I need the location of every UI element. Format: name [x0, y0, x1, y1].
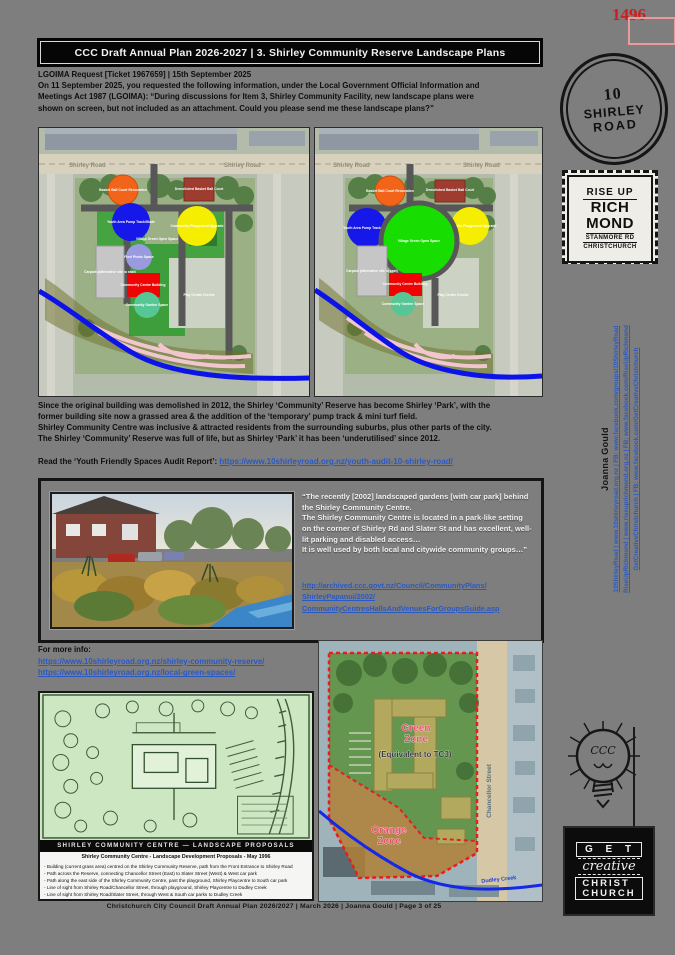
village-green-label: Village Green Open Space	[398, 239, 440, 243]
land-zone-map: Green Zone (Equivalent to TC3) Orange Zo…	[318, 640, 543, 902]
archive-link-line[interactable]: ShirleyPapanui/2002/	[302, 591, 532, 602]
parked-car	[138, 552, 162, 561]
demolished-court-label: Demolished Basket Ball Court	[426, 188, 475, 192]
archive-link-line[interactable]: CommunityCentresHallsAndVenuesForGroupsG…	[302, 603, 532, 614]
basketball-renovation-label: Basket Ball Court Renovation	[99, 188, 147, 192]
rise-up-richmond-stamp: RISE UP RICH MOND STANMORE RD CHRISTCHUR…	[562, 170, 658, 264]
sidebar-divider-line	[633, 727, 635, 827]
audit-report-link[interactable]: https://www.10shirleyroad.org.nz/youth-a…	[219, 457, 453, 466]
stamp-line: CHURCH	[582, 889, 635, 899]
archived-quote-source: http://archived.ccc.govt.nz/Council/Comm…	[302, 580, 532, 614]
plan-drawing	[40, 693, 312, 840]
body-line: former building site now a grassed area …	[38, 411, 546, 422]
stamp-line: 10	[603, 85, 623, 105]
more-info-link-1[interactable]: https://www.10shirleyroad.org.nz/shirley…	[38, 656, 338, 668]
basketball-renovation-label: Basket Ball Court Renovation	[366, 189, 414, 193]
audit-label: Read the ‘Youth Friendly Spaces Audit Re…	[38, 457, 219, 466]
shirley-road-stamp: 10 SHIRLEY ROAD	[555, 49, 672, 170]
poster-page: CCC Draft Annual Plan 2026-2027 | 3. Shi…	[0, 0, 675, 955]
stamp-line: G E T	[576, 842, 642, 857]
stamp-line: STANMORE RD	[586, 233, 635, 241]
more-info-link-2[interactable]: https://www.10shirleyroad.org.nz/local-g…	[38, 667, 338, 679]
aerial-map-option-1: Shirley Road Shirley Road	[39, 128, 309, 396]
orange-zone-label: Zone	[377, 836, 401, 847]
lgoima-request: LGOIMA Request [Ticket 1967659] | 15th S…	[38, 69, 544, 114]
plan-note: - Building (current grass area) centred …	[44, 863, 308, 870]
community-centre-quote-panel: “The recently [2002] landscaped gardens …	[38, 478, 544, 643]
stamp-line: creative	[578, 858, 639, 875]
green-zone-label: Zone	[404, 734, 428, 745]
more-info-block: For more info: https://www.10shirleyroad…	[38, 644, 338, 679]
get-creative-stamp: G E T creative CHRIST CHURCH	[563, 826, 655, 916]
quote-line: “The recently [2002] landscaped gardens …	[302, 492, 532, 513]
page-title: CCC Draft Annual Plan 2026-2027 | 3. Shi…	[40, 41, 540, 64]
page-title-text: CCC Draft Annual Plan 2026-2027 | 3. Shi…	[75, 47, 506, 59]
green-zone-label: Green	[402, 723, 431, 734]
plan-note: - Line of sight from Shirley Road/Chance…	[44, 884, 308, 891]
footer-line: Christchurch City Council Draft Annual P…	[0, 903, 548, 910]
body-line: Shirley Community Centre was inclusive &…	[38, 422, 546, 433]
stamp-line: MOND	[586, 216, 634, 232]
road-label: Shirley Road	[224, 163, 261, 169]
orange-zone-label: Orange	[371, 825, 406, 836]
plan-note: - Path across the Reserve, connecting Ch…	[44, 870, 308, 877]
demolished-court-label: Demolished Basket Ball Court	[175, 187, 224, 191]
contact-link-3[interactable]: GetCreativeChristchurch | FB: www.facebo…	[633, 348, 640, 571]
flexi-space-label: Flexi Picnic Space	[124, 255, 154, 259]
bulb-base	[593, 780, 613, 807]
playcentre-label: Play Centre Creche	[437, 293, 468, 297]
request-line: shown on screen, but not included as an …	[38, 103, 544, 114]
road-label: Shirley Road	[463, 163, 500, 169]
tc3-label: (Equivalent to TC3)	[379, 750, 452, 759]
playground-upgrade-label: Community Playground Upgrade	[171, 224, 224, 228]
bulb-ccc-text: CCC	[590, 744, 616, 757]
contact-link-1[interactable]: 10ShirleyRoad | www.10shirleyroad.org.nz…	[613, 326, 620, 593]
audit-report-line: Read the ‘Youth Friendly Spaces Audit Re…	[38, 457, 546, 466]
plan-caption-title: Shirley Community Centre - Landscape Dev…	[44, 854, 308, 862]
body-line: Since the original building was demolish…	[38, 400, 546, 411]
stamp-line: CHRISTCHURCH	[583, 242, 636, 250]
garden-space-label: Community Garden Space	[126, 303, 169, 307]
stamp-line: ROAD	[593, 117, 639, 135]
request-line: Meetings Act 1987 (LGOIMA): “During disc…	[38, 91, 544, 102]
quote-line: It is well used by both local and citywi…	[302, 545, 532, 556]
archive-link-line[interactable]: http://archived.ccc.govt.nz/Council/Comm…	[302, 580, 532, 591]
request-heading: LGOIMA Request [Ticket 1967659] | 15th S…	[38, 69, 544, 80]
contact-link-2[interactable]: RiseUpRichmond | www.riseuprichmond.org.…	[623, 325, 630, 593]
community-centre-photo	[50, 492, 294, 629]
archived-quote: “The recently [2002] landscaped gardens …	[302, 492, 532, 556]
plan-caption: Shirley Community Centre - Landscape Dev…	[40, 852, 312, 899]
chancellor-street-label: Chancellor Street	[486, 763, 493, 818]
playcentre-label: Play Centre Creche	[183, 293, 214, 297]
plan-note: - Path along the east side of the Shirle…	[44, 877, 308, 884]
plan-title-bar: SHIRLEY COMMUNITY CENTRE — LANDSCAPE PRO…	[40, 840, 312, 852]
request-line: On 11 September 2025, you requested the …	[38, 80, 544, 91]
garden-photo-graphic	[52, 494, 292, 627]
history-paragraph: Since the original building was demolish…	[38, 400, 546, 444]
community-centre-label: Community Centre Building	[121, 283, 166, 287]
body-line: The Shirley ‘Community’ Reserve was full…	[38, 433, 546, 444]
road-label: Shirley Road	[333, 163, 370, 169]
more-info-label: For more info:	[38, 644, 338, 656]
road-label: Shirley Road	[69, 163, 106, 169]
village-green-label: Village Green Open Space	[136, 237, 178, 241]
aerial-map-option-2: Shirley Road Shirley Road	[315, 128, 542, 396]
landscape-plan-map-option-2: Shirley Road Shirley Road	[314, 127, 543, 397]
landscape-proposals-1996: SHIRLEY COMMUNITY CENTRE — LANDSCAPE PRO…	[38, 691, 314, 901]
landscape-plan-map-option-1: Shirley Road Shirley Road	[38, 127, 310, 397]
author-name: Joanna Gould	[600, 427, 610, 491]
ccc-lightbulb-stamp: CCC	[567, 720, 641, 829]
stamp-line: RICH	[591, 200, 630, 216]
zone-map-graphic: Green Zone (Equivalent to TC3) Orange Zo…	[319, 641, 542, 901]
garden-space-label: Community Garden Space	[382, 302, 425, 306]
plan-note: - Line of sight from Shirley Road/Slater…	[44, 891, 308, 898]
plan-title-text: SHIRLEY COMMUNITY CENTRE — LANDSCAPE PRO…	[57, 842, 295, 849]
quote-line: The Shirley Community Centre is located …	[302, 513, 532, 545]
youth-area-label: Youth Area Pump Track/Skate	[107, 220, 155, 224]
stamp-line: CHRIST	[582, 879, 635, 889]
page-number-stamp-box	[628, 17, 675, 45]
community-centre-label: Community Centre Building	[383, 282, 428, 286]
carpark-label: Carpark (alternative site to east)	[346, 269, 398, 273]
bulb-filament	[594, 764, 612, 768]
contact-sidebar: Joanna Gould 10ShirleyRoad | www.10shirl…	[577, 266, 663, 652]
